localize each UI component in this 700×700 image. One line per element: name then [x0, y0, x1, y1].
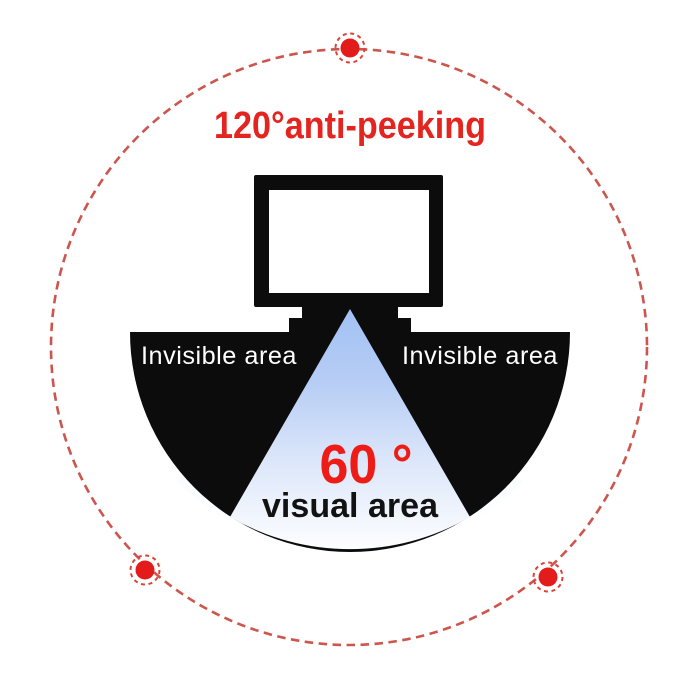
anti-peeking-title: 120°anti-peeking: [214, 105, 486, 147]
invisible-area-right-label: Invisible area: [402, 342, 558, 370]
orbit-dot-bottom-right: [534, 563, 563, 592]
anti-peeking-diagram: 120°anti-peeking Invisible area Invisibl…: [0, 0, 700, 700]
monitor-screen: [269, 190, 429, 293]
visual-angle-label: 60 °: [320, 433, 413, 495]
orbit-dot-bottom-left: [131, 556, 160, 585]
orbit-dot-bottom-right-fill: [539, 568, 558, 587]
diagram-canvas: 120°anti-peeking Invisible area Invisibl…: [0, 0, 700, 700]
visual-area-label: visual area: [262, 487, 439, 525]
orbit-dot-top-fill: [341, 39, 360, 58]
invisible-area-left-label: Invisible area: [141, 342, 297, 370]
orbit-dot-bottom-left-fill: [136, 561, 155, 580]
